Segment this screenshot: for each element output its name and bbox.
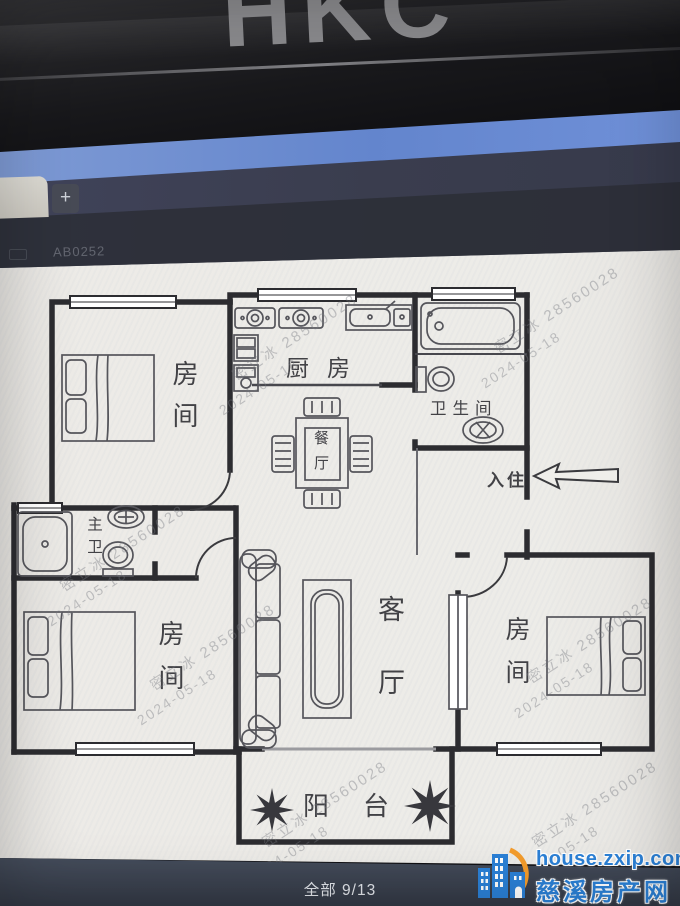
shower (18, 512, 72, 576)
new-tab-button[interactable]: + (52, 184, 79, 213)
entry-arrow (534, 464, 618, 488)
wardrobe (449, 595, 467, 709)
floorplan-drawing (6, 270, 674, 852)
windows (18, 288, 601, 755)
furniture (18, 301, 645, 748)
coffee-table (303, 580, 351, 718)
site-badge: house.zxip.com 慈溪房产网 (470, 840, 678, 906)
washbasin-bathroom (463, 417, 503, 443)
badge-site-name: 慈溪房产网 (536, 872, 680, 906)
buildings-icon (474, 844, 534, 904)
plant-icon (250, 780, 456, 832)
bed-right (547, 617, 645, 695)
stove (235, 308, 323, 328)
toilet-master (103, 542, 133, 576)
partition-lines (252, 354, 527, 749)
bed-top-left (62, 355, 154, 441)
toolbar-icon (9, 249, 27, 260)
photo-of-monitor: 房间 厨房 卫生间 餐厅 入住 主卫 房间 客厅 房间 阳台 密立冰 28560… (0, 0, 680, 906)
kitchen-sink (346, 301, 412, 330)
dining-table (272, 398, 372, 508)
fridge-appliances (234, 335, 258, 391)
bathtub (421, 303, 520, 349)
badge-domain: house.zxip.com (536, 848, 680, 871)
browser-tab[interactable] (0, 176, 49, 219)
toolbar-text: AB0252 (53, 243, 106, 259)
sofa (240, 550, 280, 748)
monitor-brand-logo: HKC (219, 0, 462, 70)
toilet-bathroom (416, 367, 454, 392)
bed-bottom-left (24, 612, 135, 710)
